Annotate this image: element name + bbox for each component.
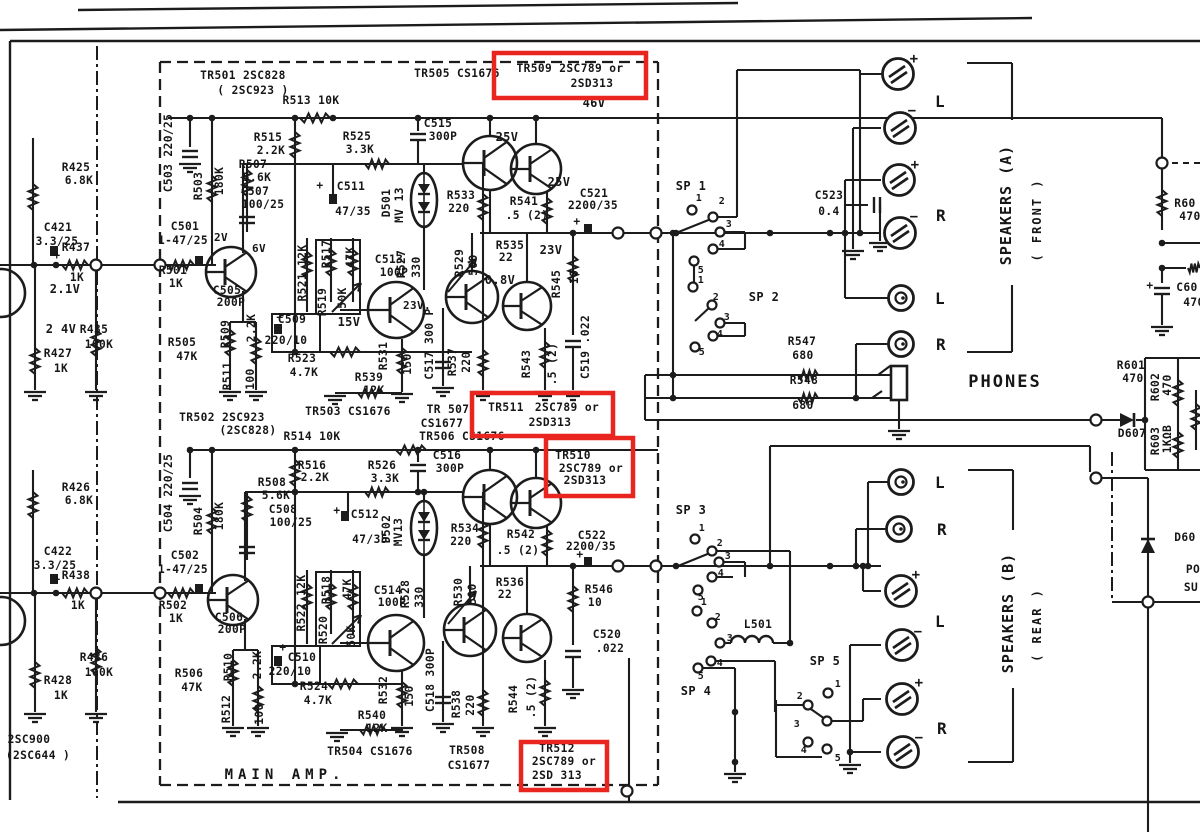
schematic-label: R437 — [62, 241, 91, 254]
schematic-label: TR504 CS1676 — [327, 745, 413, 758]
schematic-label: 3 — [725, 551, 731, 562]
schematic-label: 150 — [401, 353, 414, 374]
schematic-label: 6.8K — [65, 174, 94, 187]
schematic-label: 5 — [698, 671, 704, 682]
page-borders — [0, 3, 1200, 802]
schematic-label: MAIN AMP. — [225, 767, 346, 783]
schematic-label: − — [914, 624, 923, 640]
schematic-label: 3 — [727, 633, 733, 644]
schematic-label: 220/10 — [269, 665, 312, 678]
schematic-label: R547 — [788, 335, 817, 348]
schematic-label: C60 — [1176, 281, 1197, 294]
schematic-label: R545 — [550, 270, 563, 299]
schematic-label: R503 — [192, 172, 205, 201]
schematic-label: 15V — [338, 315, 361, 329]
schematic-label: R507 — [239, 158, 268, 171]
schematic-label: D501 — [380, 189, 393, 218]
schematic-label: 47K — [344, 246, 357, 267]
schematic-label: 12K — [363, 384, 384, 397]
schematic-label: 5.6K — [262, 489, 291, 502]
schematic-label: .022 — [596, 642, 625, 655]
schematic-label: 1K — [169, 612, 183, 625]
schematic-label: R501 — [159, 264, 188, 277]
schematic-label: 500 — [467, 254, 480, 275]
schematic-label: .5 (2) — [497, 544, 540, 557]
schematic-label: C502 — [171, 549, 200, 562]
schematic-label: C515 — [424, 117, 453, 130]
schematic-label: R427 — [44, 347, 73, 360]
schematic-label: − — [908, 103, 917, 119]
schematic-label: TR511 — [488, 401, 524, 414]
schematic-label: R505 — [168, 336, 197, 349]
schematic-label: 1K — [54, 362, 68, 375]
schematic-label: (2SC828) — [219, 424, 276, 437]
schematic-label: L — [935, 473, 945, 492]
schematic-label: R436 — [80, 651, 109, 664]
schematic-label: R528 — [399, 580, 412, 609]
schematic-label: R546 — [585, 583, 614, 596]
schematic-label: R513 10K — [282, 94, 339, 107]
schematic-label: 2 — [717, 538, 723, 549]
schematic-label: 2V — [214, 231, 228, 244]
schematic-label: R521 12K — [296, 244, 309, 301]
schematic-label: 4.7K — [290, 366, 319, 379]
schematic-label: MV13 — [392, 518, 405, 547]
schematic-label: 3 — [726, 219, 732, 230]
schematic-label: 300P — [429, 130, 458, 143]
schematic-label: R — [936, 206, 946, 225]
schematic-label: ( FRONT ) — [1030, 178, 1044, 261]
schematic-label: 470 — [1161, 374, 1174, 395]
schematic-label: 3.3K — [346, 143, 375, 156]
schematic-label: R527 — [395, 250, 408, 279]
schematic-label: R517 — [320, 240, 333, 269]
schematic-label: R541 — [510, 195, 539, 208]
component-symbols — [0, 59, 1200, 797]
schematic-label: 2SD313 — [571, 77, 614, 90]
circuit-wires — [0, 63, 1200, 832]
schematic-label: + — [53, 573, 60, 586]
schematic-label: 2SD313 — [564, 474, 607, 487]
schematic-label: R428 — [44, 674, 73, 687]
schematic-label: C421 — [44, 221, 73, 234]
schematic-label: 2SC900 — [8, 733, 51, 746]
schematic-label: R531 — [377, 342, 390, 371]
schematic-label: + — [910, 51, 919, 67]
schematic-label: C501 — [171, 220, 200, 233]
schematic-label: C507 — [241, 185, 270, 198]
schematic-label: TR509 2SC789 or — [516, 62, 623, 75]
schematic-label: 47K — [341, 578, 354, 599]
schematic-label: L501 — [744, 618, 773, 631]
schematic-label: 100/25 — [270, 516, 313, 529]
schematic-label: R543 — [520, 350, 533, 379]
schematic-label: 4 — [719, 239, 725, 250]
schematic-label: R435 — [80, 323, 109, 336]
schematic-label: 220 — [460, 351, 473, 372]
schematic-label: R519 — [316, 288, 329, 317]
schematic-label: 470 — [1183, 296, 1200, 309]
schematic-label: 200P — [217, 296, 246, 309]
schematic-label: 500 — [466, 583, 479, 604]
schematic-label: − — [915, 730, 924, 746]
schematic-label: 3.3K — [371, 472, 400, 485]
schematic-label: 1KΩB — [1161, 425, 1174, 454]
schematic-label: R60 — [1174, 197, 1195, 210]
schematic-label: C511 — [337, 180, 366, 193]
schematic-label: TR510 — [555, 449, 591, 462]
schematic-label: 1K — [54, 689, 68, 702]
schematic-page: TR501 2SC828( 2SC923 )TR505 CS1676TR509 … — [0, 0, 1200, 832]
schematic-label: 2.2K — [251, 651, 264, 680]
schematic-label: D60 — [1174, 531, 1195, 544]
schematic-label: 4 — [801, 745, 807, 756]
schematic-label: 5 — [835, 753, 841, 764]
schematic-label: R511 — [221, 362, 234, 391]
schematic-label: R518 — [320, 576, 333, 605]
schematic-label: 22 — [499, 251, 513, 264]
schematic-label: 220 — [450, 535, 471, 548]
schematic-label: 2 — [713, 292, 719, 303]
schematic-label: 180K — [213, 167, 226, 196]
schematic-label: 47/35 — [335, 205, 371, 218]
schematic-label: C510 — [288, 651, 317, 664]
schematic-label: TR 507 — [427, 403, 470, 416]
schematic-label: 1 — [699, 523, 705, 534]
schematic-label: R502 — [159, 599, 188, 612]
schematic-label: C422 — [44, 545, 73, 558]
schematic-label: 1-47/25 — [158, 563, 208, 576]
schematic-label: R534 — [451, 522, 480, 535]
schematic-label: 470 — [1122, 372, 1143, 385]
schematic-label: R533 — [447, 189, 476, 202]
schematic-label: 1 — [701, 597, 707, 608]
schematic-label: 2200/35 — [566, 540, 616, 553]
schematic-label: R540 — [358, 709, 387, 722]
schematic-label: L — [935, 612, 945, 631]
schematic-label: R539 — [355, 371, 384, 384]
schematic-label: 100 — [253, 703, 266, 724]
schematic-label: C508 — [269, 503, 298, 516]
schematic-label: PO — [1186, 563, 1200, 576]
schematic-label: CS1677 — [421, 417, 464, 430]
schematic-label: 1K — [169, 277, 183, 290]
schematic-label: 220 — [448, 202, 469, 215]
schematic-label: C517 300 P — [423, 308, 436, 379]
schematic-label: R529 — [453, 249, 466, 278]
schematic-label: R504 — [192, 507, 205, 536]
schematic-label: .5 (2) — [546, 343, 559, 386]
schematic-label: R — [937, 520, 947, 539]
schematic-label: 180K — [213, 502, 226, 531]
schematic-label: 47K — [176, 350, 197, 363]
schematic-label: .5 (2) — [506, 209, 549, 222]
schematic-label: + — [576, 548, 583, 561]
schematic-label: R425 — [62, 161, 91, 174]
schematic-label: R506 — [175, 667, 204, 680]
schematic-label: C520 — [593, 628, 622, 641]
schematic-label: 470 — [1179, 210, 1200, 223]
schematic-label: 4 — [717, 329, 723, 340]
schematic-label: 1K — [71, 599, 85, 612]
schematic-label: + — [912, 567, 921, 583]
schematic-label: R530 — [452, 578, 465, 607]
schematic-label: R525 — [343, 130, 372, 143]
schematic-label: R523 — [288, 352, 317, 365]
schematic-label: D607 — [1118, 427, 1147, 440]
schematic-label: + — [1146, 279, 1153, 292]
schematic-label: R520 — [317, 616, 330, 645]
schematic-label: MV 13 — [393, 187, 406, 223]
schematic-label: SP 4 — [681, 684, 712, 698]
schematic-label: 22 — [498, 588, 512, 601]
schematic-label: 23V — [540, 243, 563, 257]
schematic-label: 2 — [715, 612, 721, 623]
schematic-label: R542 — [507, 528, 536, 541]
schematic-label: 0.8V — [485, 273, 516, 287]
schematic-label: R526 — [368, 459, 397, 472]
schematic-label: 680 — [792, 349, 813, 362]
schematic-label: 2SD313 — [529, 416, 572, 429]
schematic-label: R509 — [219, 320, 232, 349]
schematic-label: R515 — [254, 131, 283, 144]
schematic-label: R548 — [790, 374, 819, 387]
schematic-label: 1 — [696, 193, 702, 204]
schematic-label: TR505 CS1676 — [414, 67, 500, 80]
schematic-label: 12K — [366, 722, 387, 735]
schematic-label: C503 220/25 — [162, 114, 175, 193]
schematic-label: 10 — [568, 270, 581, 284]
schematic-label: 2 — [797, 691, 803, 702]
schematic-label: SPEAKERS (A) — [997, 145, 1015, 265]
component-labels: TR501 2SC828( 2SC923 )TR505 CS1676TR509 … — [6, 51, 1200, 783]
schematic-label: 100K — [85, 338, 114, 351]
schematic-label: R — [936, 335, 946, 354]
schematic-label: SU — [1184, 581, 1198, 594]
schematic-label: R601 — [1117, 359, 1146, 372]
schematic-label: R532 — [377, 676, 390, 705]
schematic-label: ( 2SC923 ) — [217, 84, 288, 97]
schematic-label: C516 — [433, 449, 462, 462]
schematic-label: PHONES — [968, 372, 1041, 392]
schematic-label: L — [935, 289, 945, 308]
schematic-label: 1 — [835, 679, 841, 690]
circuit-schematic: TR501 2SC828( 2SC923 )TR505 CS1676TR509 … — [0, 0, 1200, 832]
schematic-label: + — [911, 157, 920, 173]
schematic-label: SP 1 — [676, 179, 707, 193]
schematic-label: C523 — [815, 189, 844, 202]
schematic-label: 25V — [496, 130, 519, 144]
schematic-label: 2.1V — [50, 282, 81, 296]
schematic-label: 1 — [698, 275, 704, 286]
schematic-label: 2SC789 or — [535, 401, 599, 414]
schematic-label: 220 — [464, 694, 477, 715]
schematic-label: 50K — [345, 625, 358, 646]
schematic-label: 680 — [792, 399, 813, 412]
schematic-label: + — [915, 675, 924, 691]
schematic-label: C518 300P — [424, 648, 437, 712]
schematic-label: R514 10K — [283, 430, 340, 443]
schematic-label: R524 — [300, 680, 329, 693]
schematic-label: CS1677 — [448, 759, 491, 772]
schematic-label: SPEAKERS (B) — [999, 553, 1017, 673]
schematic-label: TR508 — [449, 744, 485, 757]
schematic-label: (2SC644 ) — [6, 749, 70, 762]
schematic-label: 2 4V — [46, 322, 77, 336]
schematic-label: R510 — [222, 653, 235, 682]
schematic-label: R544 — [507, 685, 520, 714]
schematic-label: R426 — [62, 481, 91, 494]
schematic-label: 25V — [548, 175, 571, 189]
schematic-label: 2SC789 or — [532, 755, 596, 768]
schematic-label: R537 — [446, 348, 459, 377]
schematic-label: 2.2K — [301, 471, 330, 484]
schematic-label: C512 — [351, 508, 380, 521]
schematic-label: SP 5 — [810, 654, 841, 668]
schematic-label: R — [937, 719, 947, 738]
schematic-label: 4 — [717, 658, 723, 669]
schematic-label: SP 3 — [676, 503, 707, 517]
schematic-label: − — [910, 209, 919, 225]
schematic-label: 2SD 313 — [532, 769, 582, 782]
schematic-label: ( REAR ) — [1030, 588, 1044, 662]
schematic-label: 10 — [588, 596, 602, 609]
schematic-label: C519 .022 — [579, 315, 592, 379]
schematic-label: L — [935, 92, 945, 111]
schematic-label: 150 — [403, 685, 416, 706]
schematic-label: + — [573, 215, 580, 228]
schematic-label: 220/10 — [265, 334, 308, 347]
tr509-highlight — [494, 53, 646, 98]
schematic-label: R538 — [450, 690, 463, 719]
schematic-label: 5.6K — [243, 171, 272, 184]
schematic-label: 5 — [699, 347, 705, 358]
schematic-label: 300P — [436, 462, 465, 475]
schematic-label: C509 — [278, 313, 307, 326]
schematic-label: 6.8K — [65, 494, 94, 507]
schematic-label: 100/25 — [242, 198, 285, 211]
schematic-label: R438 — [62, 569, 91, 582]
schematic-label: 330 — [410, 256, 423, 277]
schematic-label: R522 12K — [295, 574, 308, 631]
schematic-label: 3 — [794, 719, 800, 730]
schematic-label: 6V — [252, 242, 266, 255]
schematic-label: 100 — [244, 368, 257, 389]
schematic-label: + — [279, 641, 286, 654]
schematic-label: .5 (2) — [525, 676, 538, 719]
schematic-label: + — [53, 249, 60, 262]
schematic-label: C504 220/25 — [162, 454, 175, 533]
schematic-label: TR501 2SC828 — [200, 69, 286, 82]
schematic-label: 2200/35 — [568, 199, 618, 212]
schematic-label: SP 2 — [749, 290, 780, 304]
schematic-label: + — [316, 179, 323, 192]
schematic-label: TR502 2SC923 — [179, 411, 265, 424]
schematic-label: 4 — [718, 568, 724, 579]
schematic-label: 200P — [218, 623, 247, 636]
schematic-label: 2.2K — [257, 144, 286, 157]
schematic-label: 0.4 — [818, 205, 839, 218]
schematic-label: 1-47/25 — [158, 234, 208, 247]
phones-jack-symbol — [891, 366, 907, 400]
schematic-label: 50K — [336, 287, 349, 308]
schematic-label: 47K — [181, 681, 202, 694]
schematic-label: TR503 CS1676 — [305, 405, 391, 418]
schematic-label: + — [333, 504, 340, 517]
schematic-label: 100K — [85, 666, 114, 679]
schematic-label: 3 — [724, 312, 730, 323]
schematic-label: R512 — [220, 695, 233, 724]
schematic-label: 2 — [719, 196, 725, 207]
schematic-label: 2.2K — [245, 314, 258, 343]
schematic-label: 4.7K — [304, 694, 333, 707]
schematic-label: 330 — [413, 586, 426, 607]
schematic-label: R508 — [258, 476, 287, 489]
